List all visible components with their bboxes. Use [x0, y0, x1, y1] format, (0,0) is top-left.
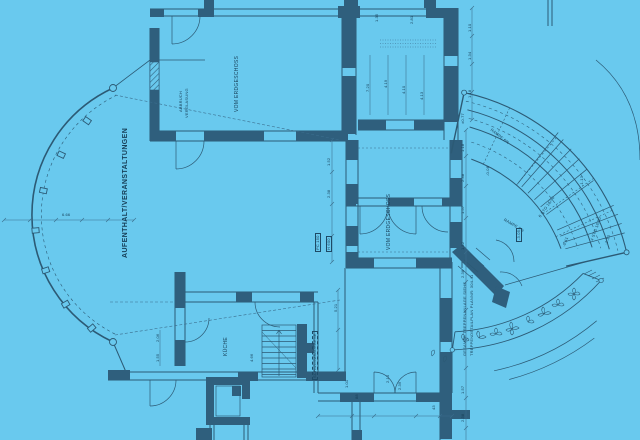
demolition-note-line2: VERGLASUNG	[185, 88, 189, 118]
dim-label: 1.57	[461, 386, 465, 394]
dim-label: 1.52	[327, 158, 331, 166]
kitchen-room-label: KÜCHE	[224, 337, 229, 356]
floor-plan-drawing	[0, 0, 640, 440]
dim-label: 5.21	[334, 304, 338, 312]
level-landing-boxed: -3.05	[516, 228, 522, 242]
level-stair-top: -1.13	[580, 176, 584, 186]
planting-bed	[431, 270, 604, 380]
bay-window	[32, 85, 117, 346]
stair-note-line2: TREPPENDETAILPLAN PLANNR: 304-41	[470, 275, 474, 356]
dim-label: 4.10	[402, 86, 406, 94]
dim-label: 2.38	[461, 270, 465, 278]
dim-label: 1.35	[375, 14, 379, 22]
dim-label: 4.13	[420, 92, 424, 100]
dashed-guides	[110, 40, 450, 335]
dim-label: 4.66	[250, 354, 254, 362]
dim-label: 2.10	[386, 375, 390, 383]
dim-label: 1.52	[461, 242, 465, 250]
terrace-radials	[483, 108, 612, 237]
dim-label: 2.38	[461, 174, 465, 182]
dim-label: 2.38	[327, 190, 331, 198]
dim-label: 4.19	[384, 80, 388, 88]
upper-room-label: VOM ERDGESCHOSS	[235, 56, 240, 112]
curved-stairs	[505, 133, 625, 286]
dim-label: 1.57	[461, 206, 465, 214]
dim-label: 2.06	[156, 334, 160, 342]
dim-label: 1.18	[468, 90, 472, 98]
dim-label: 2.81	[410, 16, 414, 24]
blueprint-sheet: AUFENTHALT/VERANSTALTUNGEN VOM ERDGESCHO…	[0, 0, 640, 440]
level-terrace-top: ±0.77	[461, 113, 465, 124]
dim-label: 1.18	[461, 144, 465, 152]
stair-note-line1: GESAMTE TREPPENANLAGE SIEHE	[463, 282, 467, 356]
pool-level-tag: SCHWIMMBADEBENE	[312, 331, 318, 380]
pc-tag: PC 150	[315, 233, 321, 252]
dim-label: 1.55	[156, 354, 160, 362]
dim-label: 43	[432, 405, 436, 410]
demolition-note-line1: ABBRUCH	[179, 91, 183, 112]
hall-room-label: AUFENTHALT/VERANSTALTUNGEN	[122, 128, 129, 258]
dim-label: 2.39	[398, 382, 402, 390]
dim-label: 7.20	[366, 84, 370, 92]
dim-label: 1.01	[345, 380, 349, 388]
dim-label: 1.10	[468, 24, 472, 32]
h-tag: H 600	[326, 236, 332, 252]
dim-label: 2.38	[461, 414, 465, 422]
curved-terrace	[451, 90, 629, 266]
center-room-label: VOM ERDGESCHOSS	[387, 194, 392, 250]
terrace-end-caps	[451, 93, 626, 267]
dim-label: 1.34	[468, 52, 472, 60]
dim-label: 88	[355, 394, 359, 399]
level-terrace-mid: -0.08	[486, 166, 490, 176]
dim-label: 6.66	[62, 213, 70, 217]
